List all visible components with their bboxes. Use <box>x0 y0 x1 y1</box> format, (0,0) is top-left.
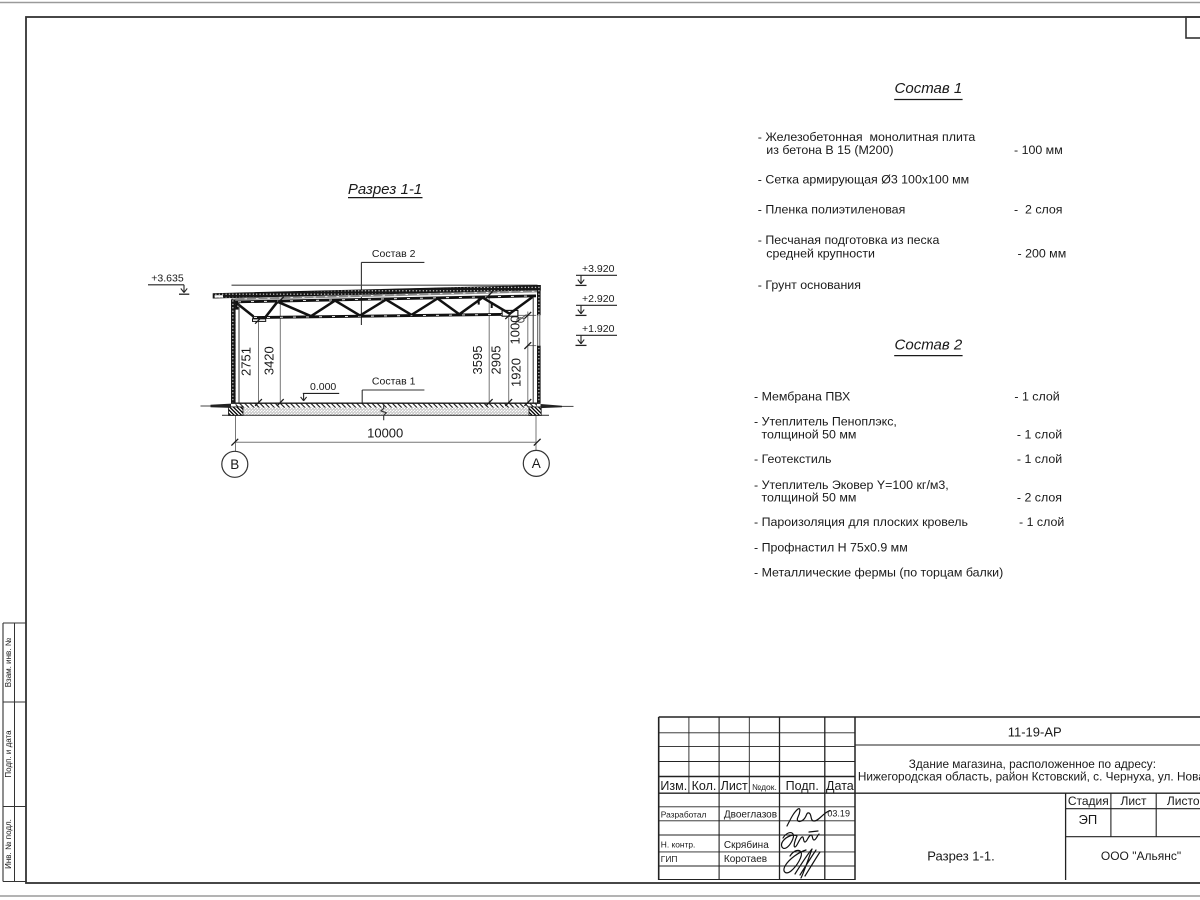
svg-text:- Утеплитель Пеноплэкс,: - Утеплитель Пеноплэкс, <box>754 415 897 429</box>
svg-text:Состав 1: Состав 1 <box>895 80 963 97</box>
svg-text:средней крупности: средней крупности <box>766 247 875 261</box>
svg-text:- 1 слой: - 1 слой <box>1017 428 1062 442</box>
svg-text:Состав 2: Состав 2 <box>895 336 963 353</box>
svg-text:- Грунт основания: - Грунт основания <box>758 278 861 292</box>
svg-text:- Утеплитель Эковер Y=100 кг/м: - Утеплитель Эковер Y=100 кг/м3, <box>754 478 949 492</box>
svg-text:А: А <box>532 456 541 471</box>
svg-text:В: В <box>230 457 239 472</box>
svg-text:- Металлические фермы (по торц: - Металлические фермы (по торцам балки) <box>754 566 1003 580</box>
svg-text:Подп. и дата: Подп. и дата <box>4 730 13 778</box>
svg-text:Н. контр.: Н. контр. <box>661 840 696 850</box>
svg-text:Коротаев: Коротаев <box>724 854 767 865</box>
svg-text:- Сетка армирующая Ø3 100х100: - Сетка армирующая Ø3 100х100 мм <box>758 173 969 187</box>
svg-text:Подп.: Подп. <box>786 779 819 793</box>
svg-text:2905: 2905 <box>489 346 504 375</box>
svg-text:Разработал: Разработал <box>661 809 707 819</box>
svg-text:3420: 3420 <box>262 346 277 375</box>
svg-text:- 200 мм: - 200 мм <box>1018 247 1067 261</box>
svg-text:Состав 1: Состав 1 <box>372 375 416 387</box>
svg-text:Лист: Лист <box>721 779 748 793</box>
svg-text:- 2 слоя: - 2 слоя <box>1017 491 1062 505</box>
svg-text:ООО "Альянс": ООО "Альянс" <box>1101 849 1181 863</box>
svg-text:10000: 10000 <box>367 425 403 440</box>
svg-text:Дата: Дата <box>826 779 854 793</box>
svg-text:№док.: №док. <box>752 782 777 792</box>
svg-text:11-19-АР: 11-19-АР <box>1008 725 1062 740</box>
svg-text:Кол.: Кол. <box>692 779 717 793</box>
svg-text:+1.920: +1.920 <box>582 323 615 335</box>
svg-text:- 2 слоя: - 2 слоя <box>1014 202 1063 216</box>
svg-text:03.19: 03.19 <box>827 809 850 819</box>
svg-text:+3.920: +3.920 <box>582 263 615 275</box>
svg-text:Листов: Листов <box>1167 794 1200 808</box>
svg-text:3595: 3595 <box>470 346 485 375</box>
svg-text:- Пленка полиэтиленовая: - Пленка полиэтиленовая <box>758 202 906 216</box>
svg-text:+2.920: +2.920 <box>582 293 615 305</box>
svg-text:Взам. инв. №: Взам. инв. № <box>4 637 13 687</box>
svg-text:Стадия: Стадия <box>1068 794 1109 808</box>
svg-text:- 1 слой: - 1 слой <box>1019 515 1064 529</box>
svg-text:Лист: Лист <box>1120 794 1147 808</box>
svg-text:ГИП: ГИП <box>661 854 678 864</box>
svg-text:- Железобетонная монолитная п: - Железобетонная монолитная плита <box>758 130 976 144</box>
svg-text:Инв. № подл.: Инв. № подл. <box>4 819 13 869</box>
svg-text:- Геотекстиль: - Геотекстиль <box>754 452 831 466</box>
svg-text:Скрябина: Скрябина <box>724 839 769 851</box>
svg-text:Двоеглазов: Двоеглазов <box>724 810 777 821</box>
svg-text:- 1 слой: - 1 слой <box>1017 452 1062 466</box>
svg-text:- Профнастил Н 75х0.9 мм: - Профнастил Н 75х0.9 мм <box>754 540 908 554</box>
svg-text:толщиной 50 мм: толщиной 50 мм <box>762 491 857 505</box>
svg-text:Состав 2: Состав 2 <box>372 248 416 260</box>
svg-text:- Песчаная подготовка из песка: - Песчаная подготовка из песка <box>758 233 940 247</box>
svg-text:Разрез 1-1: Разрез 1-1 <box>348 181 422 198</box>
svg-text:- Мембрана ПВХ: - Мембрана ПВХ <box>754 389 850 403</box>
svg-text:- Пароизоляция для плоских кро: - Пароизоляция для плоских кровель <box>754 515 968 529</box>
svg-text:ЭП: ЭП <box>1079 812 1098 827</box>
svg-text:2751: 2751 <box>239 347 254 376</box>
svg-text:1920: 1920 <box>508 358 523 387</box>
svg-text:из бетона В 15 (М200): из бетона В 15 (М200) <box>766 143 893 157</box>
svg-text:Изм.: Изм. <box>660 779 687 793</box>
svg-text:- 1 слой: - 1 слой <box>1014 389 1059 403</box>
svg-text:+3.635: +3.635 <box>151 272 184 284</box>
svg-text:Разрез 1-1.: Разрез 1-1. <box>927 849 994 864</box>
svg-text:толщиной 50 мм: толщиной 50 мм <box>762 428 857 442</box>
svg-text:Нижегородская область, район К: Нижегородская область, район Кстовский, … <box>858 770 1200 784</box>
svg-text:- 100 мм: - 100 мм <box>1014 143 1063 157</box>
svg-text:1000: 1000 <box>508 316 523 345</box>
svg-text:0.000: 0.000 <box>310 381 336 393</box>
